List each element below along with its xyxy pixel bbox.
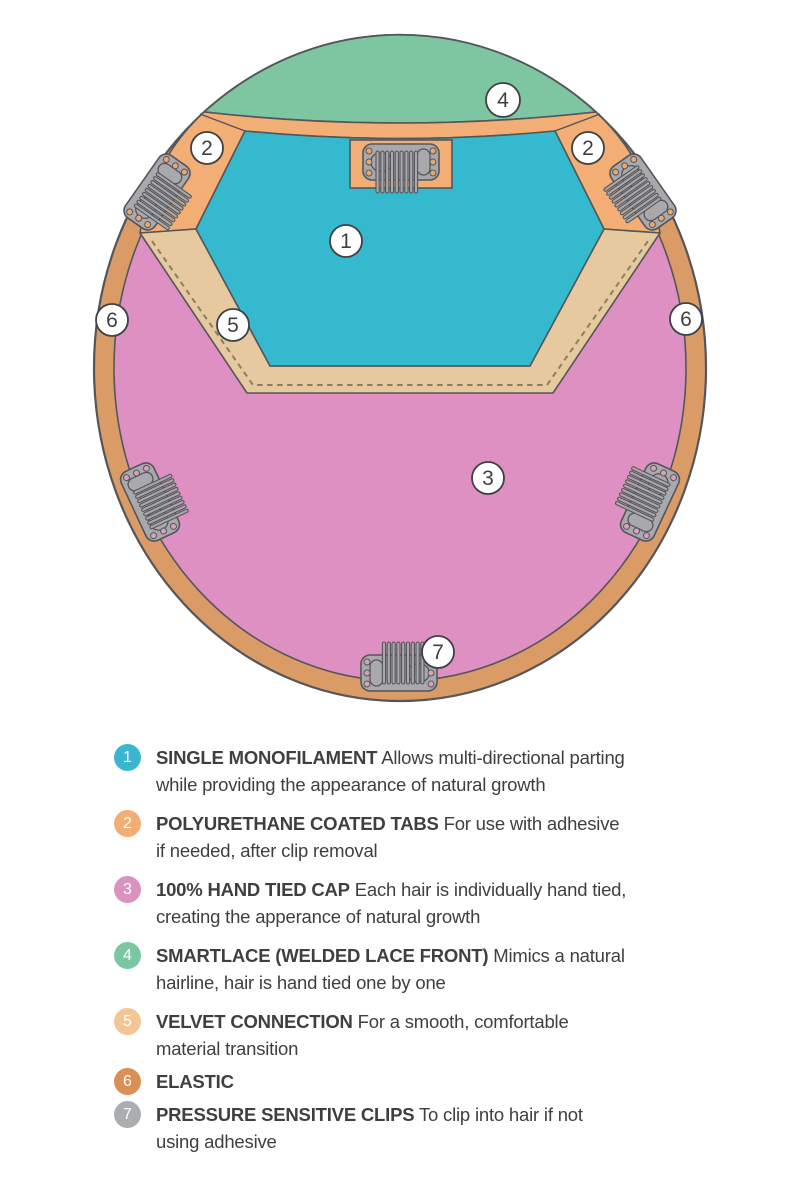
- callout-2-left: 2: [191, 132, 223, 164]
- callout-2-right-label: 2: [582, 137, 594, 160]
- legend-item-tabs: 2 POLYURETHANE COATED TABS For use with …: [114, 810, 700, 864]
- legend-term-3: 100% HAND TIED CAP: [156, 879, 350, 900]
- callout-4: 4: [486, 83, 520, 117]
- legend: 1 SINGLE MONOFILAMENT Allows multi-direc…: [114, 744, 700, 1167]
- legend-text-1: SINGLE MONOFILAMENT Allows multi-directi…: [156, 744, 691, 798]
- callout-7-label: 7: [432, 641, 444, 664]
- legend-badge-1: 1: [114, 744, 141, 771]
- legend-term-4: SMARTLACE (WELDED LACE FRONT): [156, 945, 488, 966]
- callout-1: 1: [330, 225, 362, 257]
- callout-2-left-label: 2: [201, 137, 213, 160]
- legend-term-1: SINGLE MONOFILAMENT: [156, 747, 377, 768]
- legend-term-7: PRESSURE SENSITIVE CLIPS: [156, 1104, 414, 1125]
- callout-5-label: 5: [227, 314, 239, 337]
- legend-item-elastic: 6 ELASTIC: [114, 1068, 700, 1095]
- legend-item-clips: 7 PRESSURE SENSITIVE CLIPS To clip into …: [114, 1101, 700, 1155]
- legend-item-hand-tied-cap: 3 100% HAND TIED CAP Each hair is indivi…: [114, 876, 700, 930]
- legend-term-2: POLYURETHANE COATED TABS: [156, 813, 439, 834]
- legend-text-5: VELVET CONNECTION For a smooth, comforta…: [156, 1008, 691, 1062]
- callout-1-label: 1: [340, 230, 352, 253]
- callout-2-right: 2: [572, 132, 604, 164]
- legend-item-monofilament: 1 SINGLE MONOFILAMENT Allows multi-direc…: [114, 744, 700, 798]
- callout-6-left-label: 6: [106, 309, 118, 332]
- legend-item-velvet: 5 VELVET CONNECTION For a smooth, comfor…: [114, 1008, 700, 1062]
- legend-badge-7: 7: [114, 1101, 141, 1128]
- callout-3: 3: [472, 462, 504, 494]
- legend-badge-5: 5: [114, 1008, 141, 1035]
- legend-term-5: VELVET CONNECTION: [156, 1011, 353, 1032]
- wig-cap-diagram: 1 2 2 3 4 5 6 6: [0, 0, 800, 732]
- callout-3-label: 3: [482, 467, 494, 490]
- legend-text-6: ELASTIC: [156, 1068, 691, 1095]
- callout-6-left: 6: [96, 304, 128, 336]
- smartlace-region: [204, 35, 596, 123]
- legend-text-2: POLYURETHANE COATED TABS For use with ad…: [156, 810, 691, 864]
- legend-item-smartlace: 4 SMARTLACE (WELDED LACE FRONT) Mimics a…: [114, 942, 700, 996]
- legend-term-6: ELASTIC: [156, 1071, 234, 1092]
- callout-6-right: 6: [670, 303, 702, 335]
- legend-badge-2: 2: [114, 810, 141, 837]
- callout-5: 5: [217, 309, 249, 341]
- legend-text-4: SMARTLACE (WELDED LACE FRONT) Mimics a n…: [156, 942, 691, 996]
- legend-text-3: 100% HAND TIED CAP Each hair is individu…: [156, 876, 691, 930]
- legend-text-7: PRESSURE SENSITIVE CLIPS To clip into ha…: [156, 1101, 691, 1155]
- legend-badge-6: 6: [114, 1068, 141, 1095]
- callout-7: 7: [422, 636, 454, 668]
- legend-badge-4: 4: [114, 942, 141, 969]
- callout-4-label: 4: [497, 89, 509, 112]
- infographic: 1 2 2 3 4 5 6 6: [0, 0, 800, 1199]
- callout-6-right-label: 6: [680, 308, 692, 331]
- legend-badge-3: 3: [114, 876, 141, 903]
